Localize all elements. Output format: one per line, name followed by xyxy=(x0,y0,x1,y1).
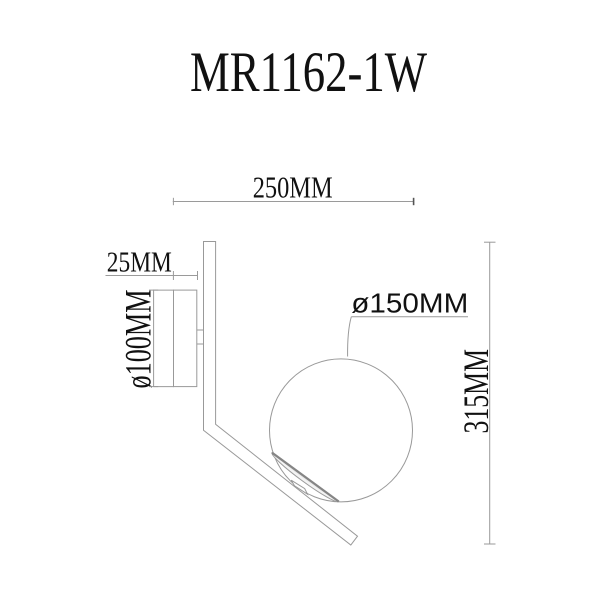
svg-text:ø150MM: ø150MM xyxy=(351,288,468,319)
svg-text:25MM: 25MM xyxy=(107,248,172,279)
svg-text:250MM: 250MM xyxy=(253,170,333,205)
svg-text:MR1162-1W: MR1162-1W xyxy=(190,41,427,104)
